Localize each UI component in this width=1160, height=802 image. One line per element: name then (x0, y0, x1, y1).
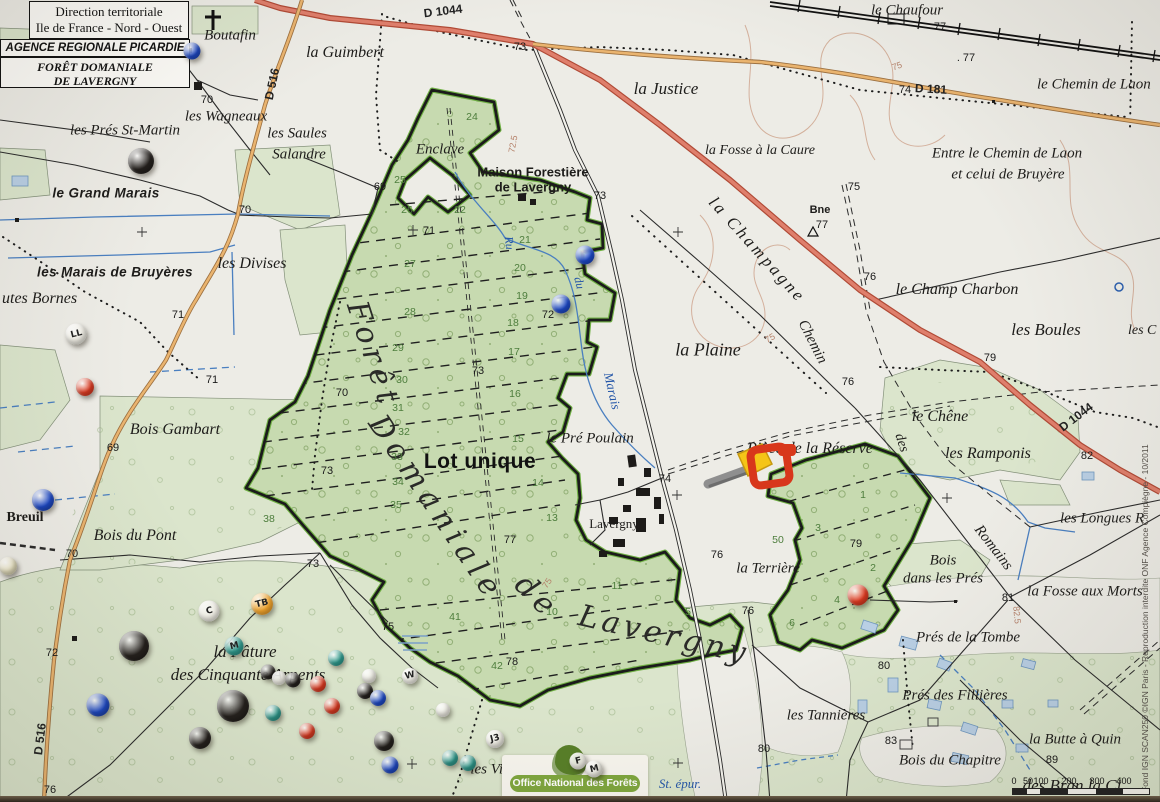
map-photo: Direction territoriale Ile de France - N… (0, 0, 1160, 802)
pushpin-black (286, 673, 301, 688)
pushpin-red (310, 676, 326, 692)
pushpin-white: W (402, 668, 418, 684)
pushpin-blue (370, 690, 386, 706)
pushpin-white: LL (66, 324, 87, 345)
pushpin-blue (87, 694, 110, 717)
pushpin-teal: M (225, 637, 244, 656)
pushpin-label: M (228, 640, 239, 652)
pushpin-black (119, 631, 149, 661)
pushpin-black (374, 731, 394, 751)
pushpin-blue (576, 246, 595, 265)
pushpin-blue (32, 489, 54, 511)
pushpin-orange: TB (251, 593, 273, 615)
pushpin-white (436, 703, 450, 717)
pushpin-black (189, 727, 211, 749)
pushpin-label: W (404, 670, 416, 682)
pushpin-cream (0, 557, 17, 575)
pushpin-black (128, 148, 154, 174)
pushpin-blue (382, 757, 399, 774)
pushpin-teal (265, 705, 281, 721)
pushpin-red (299, 723, 315, 739)
pushpin-white (272, 671, 286, 685)
pushpins-layer: LLCTBMJ3FMW (0, 0, 1160, 802)
pushpin-label: C (205, 605, 214, 616)
pushpin-label: J3 (489, 733, 501, 745)
chainsaw-marker (700, 438, 810, 508)
pushpin-teal (328, 650, 344, 666)
pushpin-label: M (588, 763, 599, 775)
pushpin-red (324, 698, 340, 714)
pushpin-red (848, 585, 869, 606)
pushpin-label: LL (69, 328, 83, 340)
pushpin-label: TB (254, 597, 269, 610)
pushpin-white: F (570, 753, 587, 770)
pushpin-white: C (199, 601, 220, 622)
pushpin-white (362, 669, 376, 683)
table-edge (0, 796, 1160, 802)
pushpin-white: J3 (486, 730, 504, 748)
pushpin-teal (460, 755, 476, 771)
pushpin-blue (184, 43, 201, 60)
pushpin-blue (552, 295, 571, 314)
pushpin-black (217, 690, 249, 722)
pushpin-label: F (574, 755, 582, 766)
pushpin-teal (442, 750, 458, 766)
pushpin-red (76, 378, 94, 396)
pushpin-white: M (586, 761, 603, 778)
